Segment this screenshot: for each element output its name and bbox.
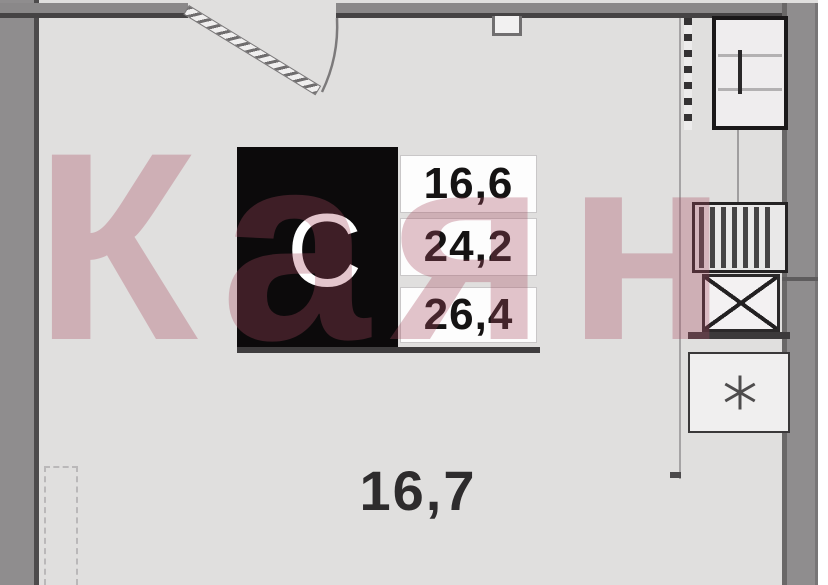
area-value-total: 24,2: [400, 218, 537, 276]
unit-type-badge: С: [237, 147, 398, 348]
cabinet-shelf-line: [718, 88, 782, 91]
top-wall-left-segment: [0, 3, 188, 18]
cabinet-shelf-line: [718, 54, 782, 57]
area-value-overall: 26,4: [400, 287, 537, 343]
floorplan-canvas: С 16,6 24,2 26,4 16,7 Каян: [0, 0, 828, 585]
hatched-appliance-icon: [692, 202, 788, 273]
appliance-hatch-stripes: [699, 207, 771, 268]
area-value-living: 16,6: [400, 155, 537, 213]
left-wall: [0, 0, 34, 585]
sink-unit-base-line: [688, 332, 790, 339]
wardrobe-dashed-outline: [44, 466, 78, 585]
sink-x-icon: [702, 274, 780, 332]
cabinet-hatch-strip: [684, 18, 692, 130]
unit-type-letter: С: [273, 193, 362, 303]
kitchen-partition-end-tick: [670, 472, 681, 478]
room-area-label: 16,7: [338, 460, 498, 522]
vent-duct-box: [492, 16, 522, 36]
left-wall-inner-edge: [34, 0, 39, 585]
kitchen-cabinet-icon: [712, 16, 788, 130]
fridge-snowflake-icon: [688, 352, 790, 433]
info-card-base-line: [237, 347, 540, 353]
counter-edge-line: [737, 130, 739, 204]
cabinet-divider-line: [738, 50, 742, 94]
right-wall-joint-line: [782, 277, 818, 281]
kitchen-partition-line: [679, 18, 681, 479]
